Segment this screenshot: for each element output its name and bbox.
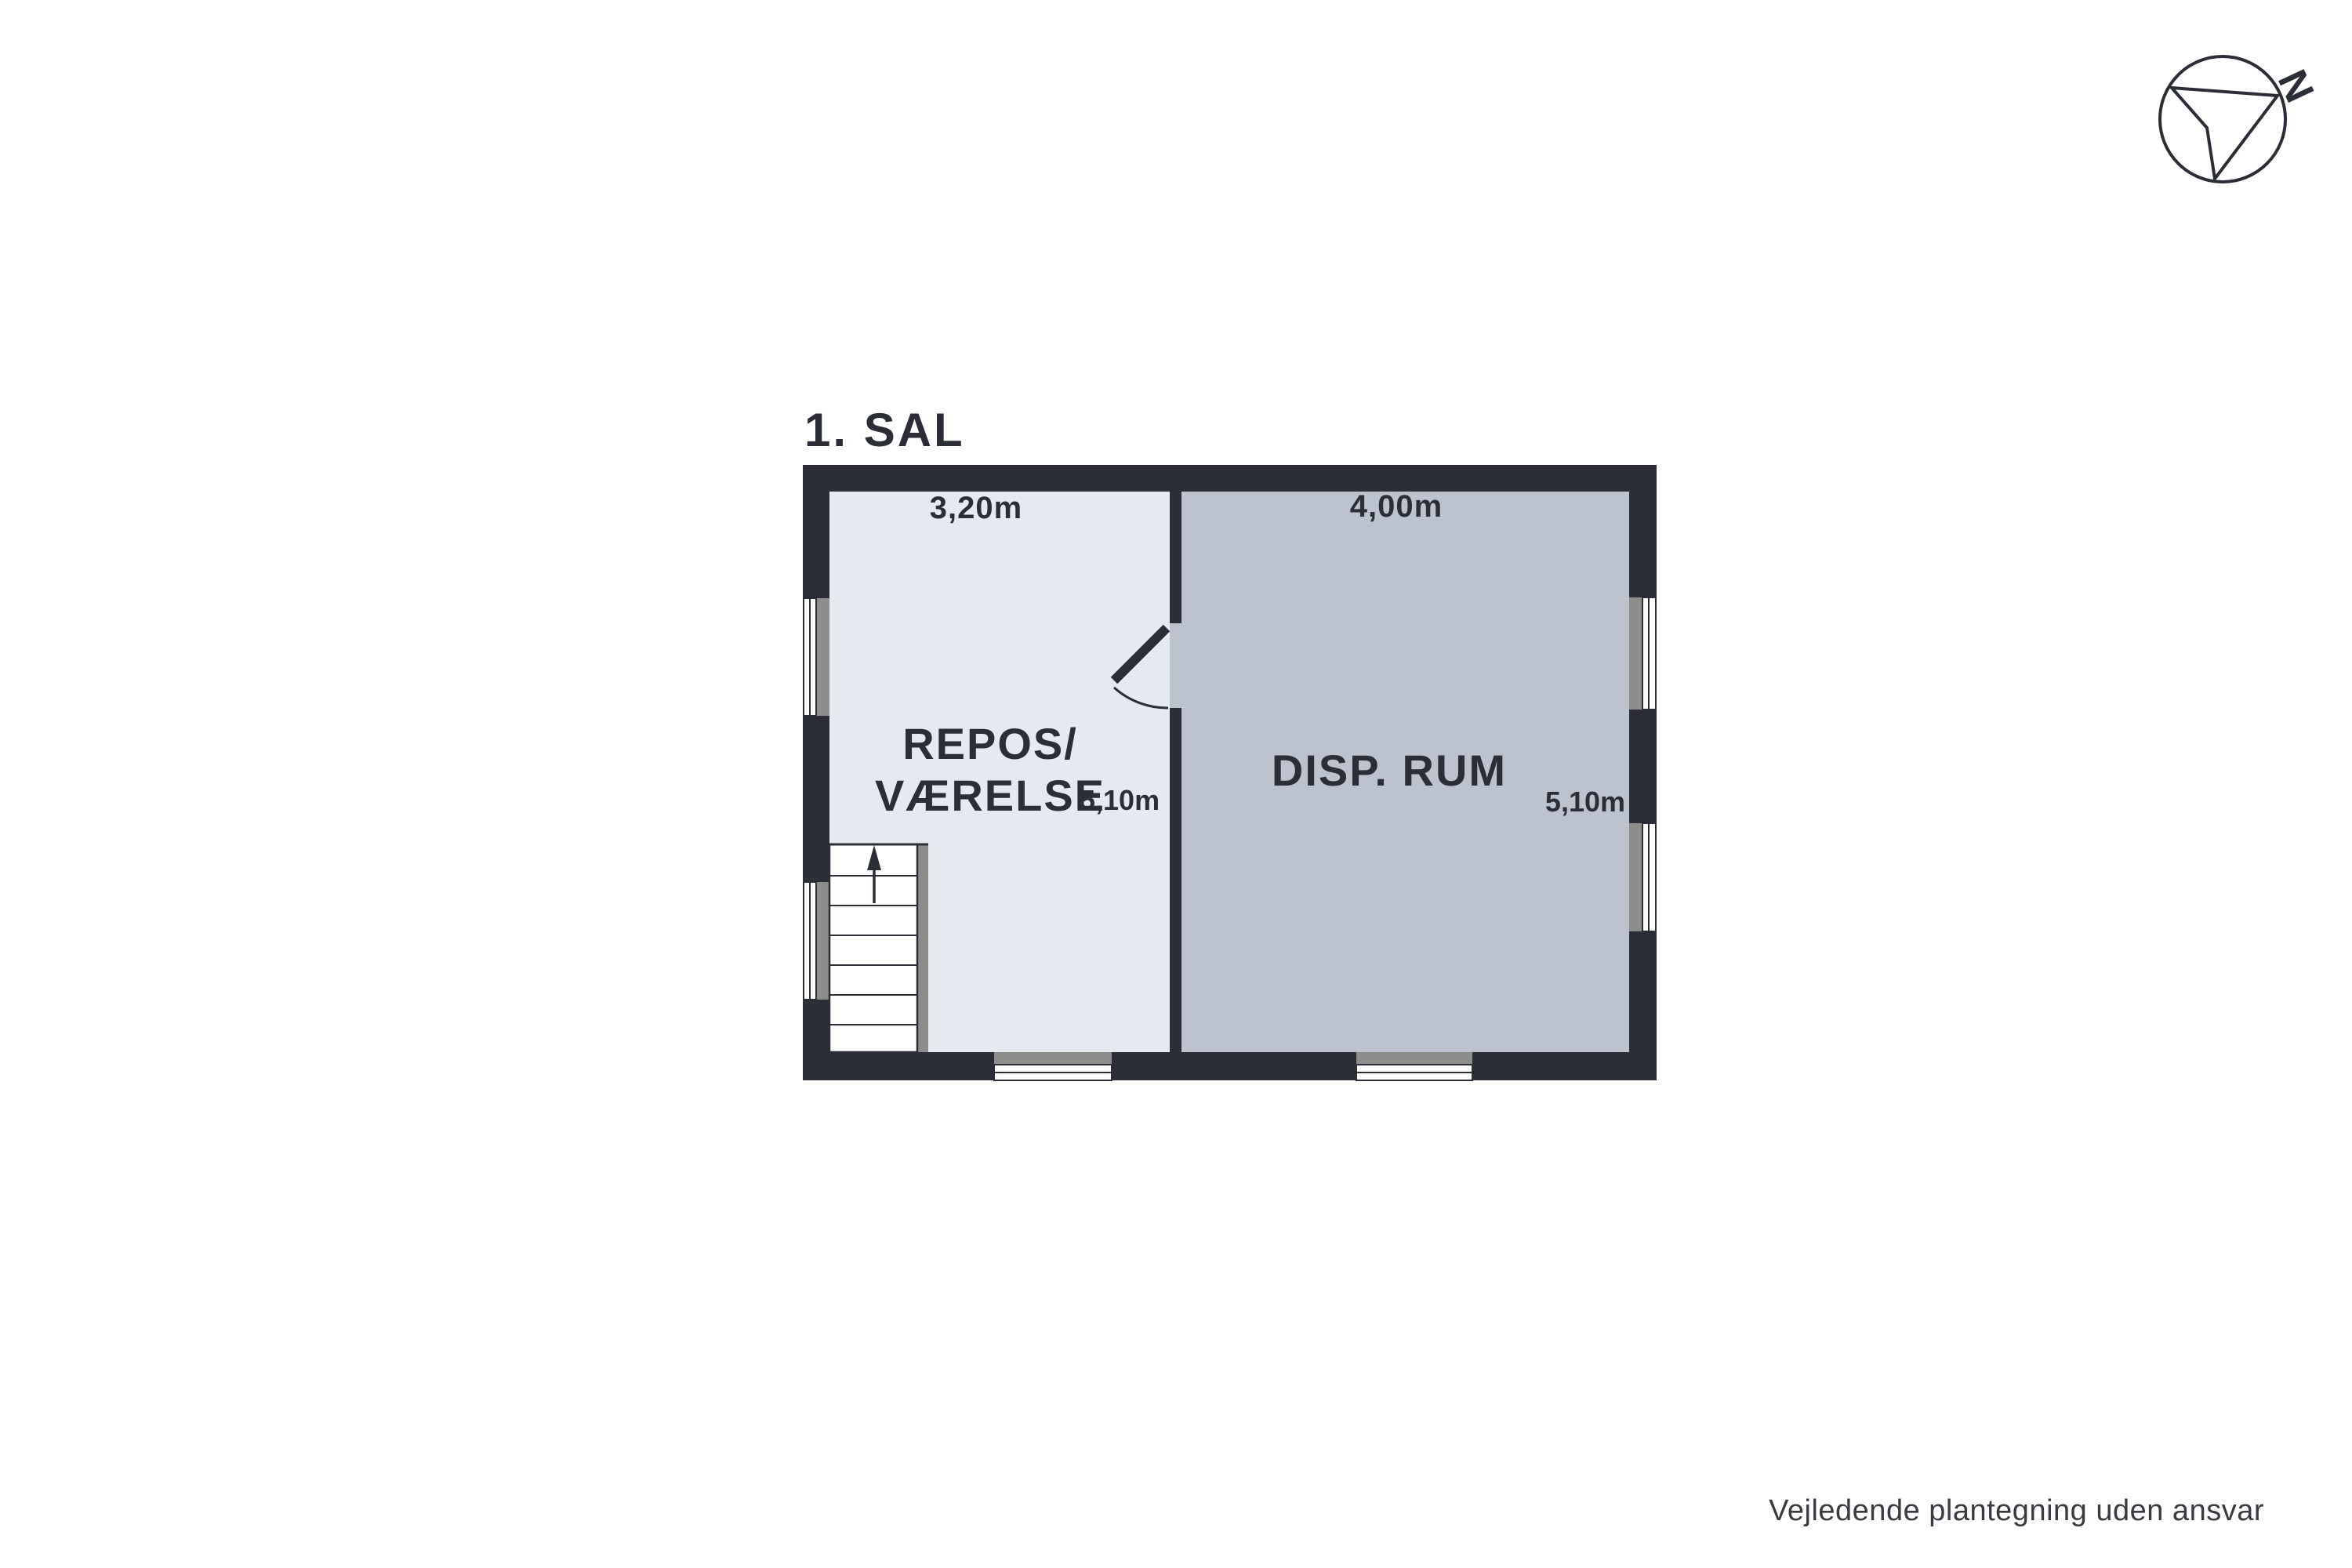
floor-plan-drawing [0, 0, 2352, 1568]
room-width-label-disp-rum: 4,00m [1350, 489, 1443, 524]
window [1629, 597, 1656, 710]
floor-title: 1. SAL [804, 403, 965, 457]
floor-plan-page: 1. SAL 3,20m 4,00m REPOS/ VÆRELSE 5,10m … [0, 0, 2352, 1568]
interior-wall [1170, 492, 1181, 1052]
room-depth-label-disp-rum: 5,10m [1545, 786, 1625, 818]
room-width-label-repos: 3,20m [930, 491, 1022, 526]
window [1356, 1052, 1472, 1080]
window [1629, 823, 1656, 931]
window [804, 882, 829, 1000]
window [804, 598, 829, 716]
staircase [829, 844, 928, 1052]
room-name-disp-rum: DISP. RUM [1272, 745, 1507, 797]
room-name-repos-vaerelse: REPOS/ VÆRELSE [875, 718, 1105, 821]
disclaimer-text: Vejledende plantegning uden ansvar [1769, 1494, 2264, 1528]
compass [2160, 56, 2285, 182]
room-name-line1: REPOS/ [875, 718, 1105, 770]
room-name-line2: VÆRELSE [875, 770, 1105, 822]
room-depth-label-repos: 5,10m [1080, 784, 1160, 817]
window [994, 1052, 1112, 1080]
